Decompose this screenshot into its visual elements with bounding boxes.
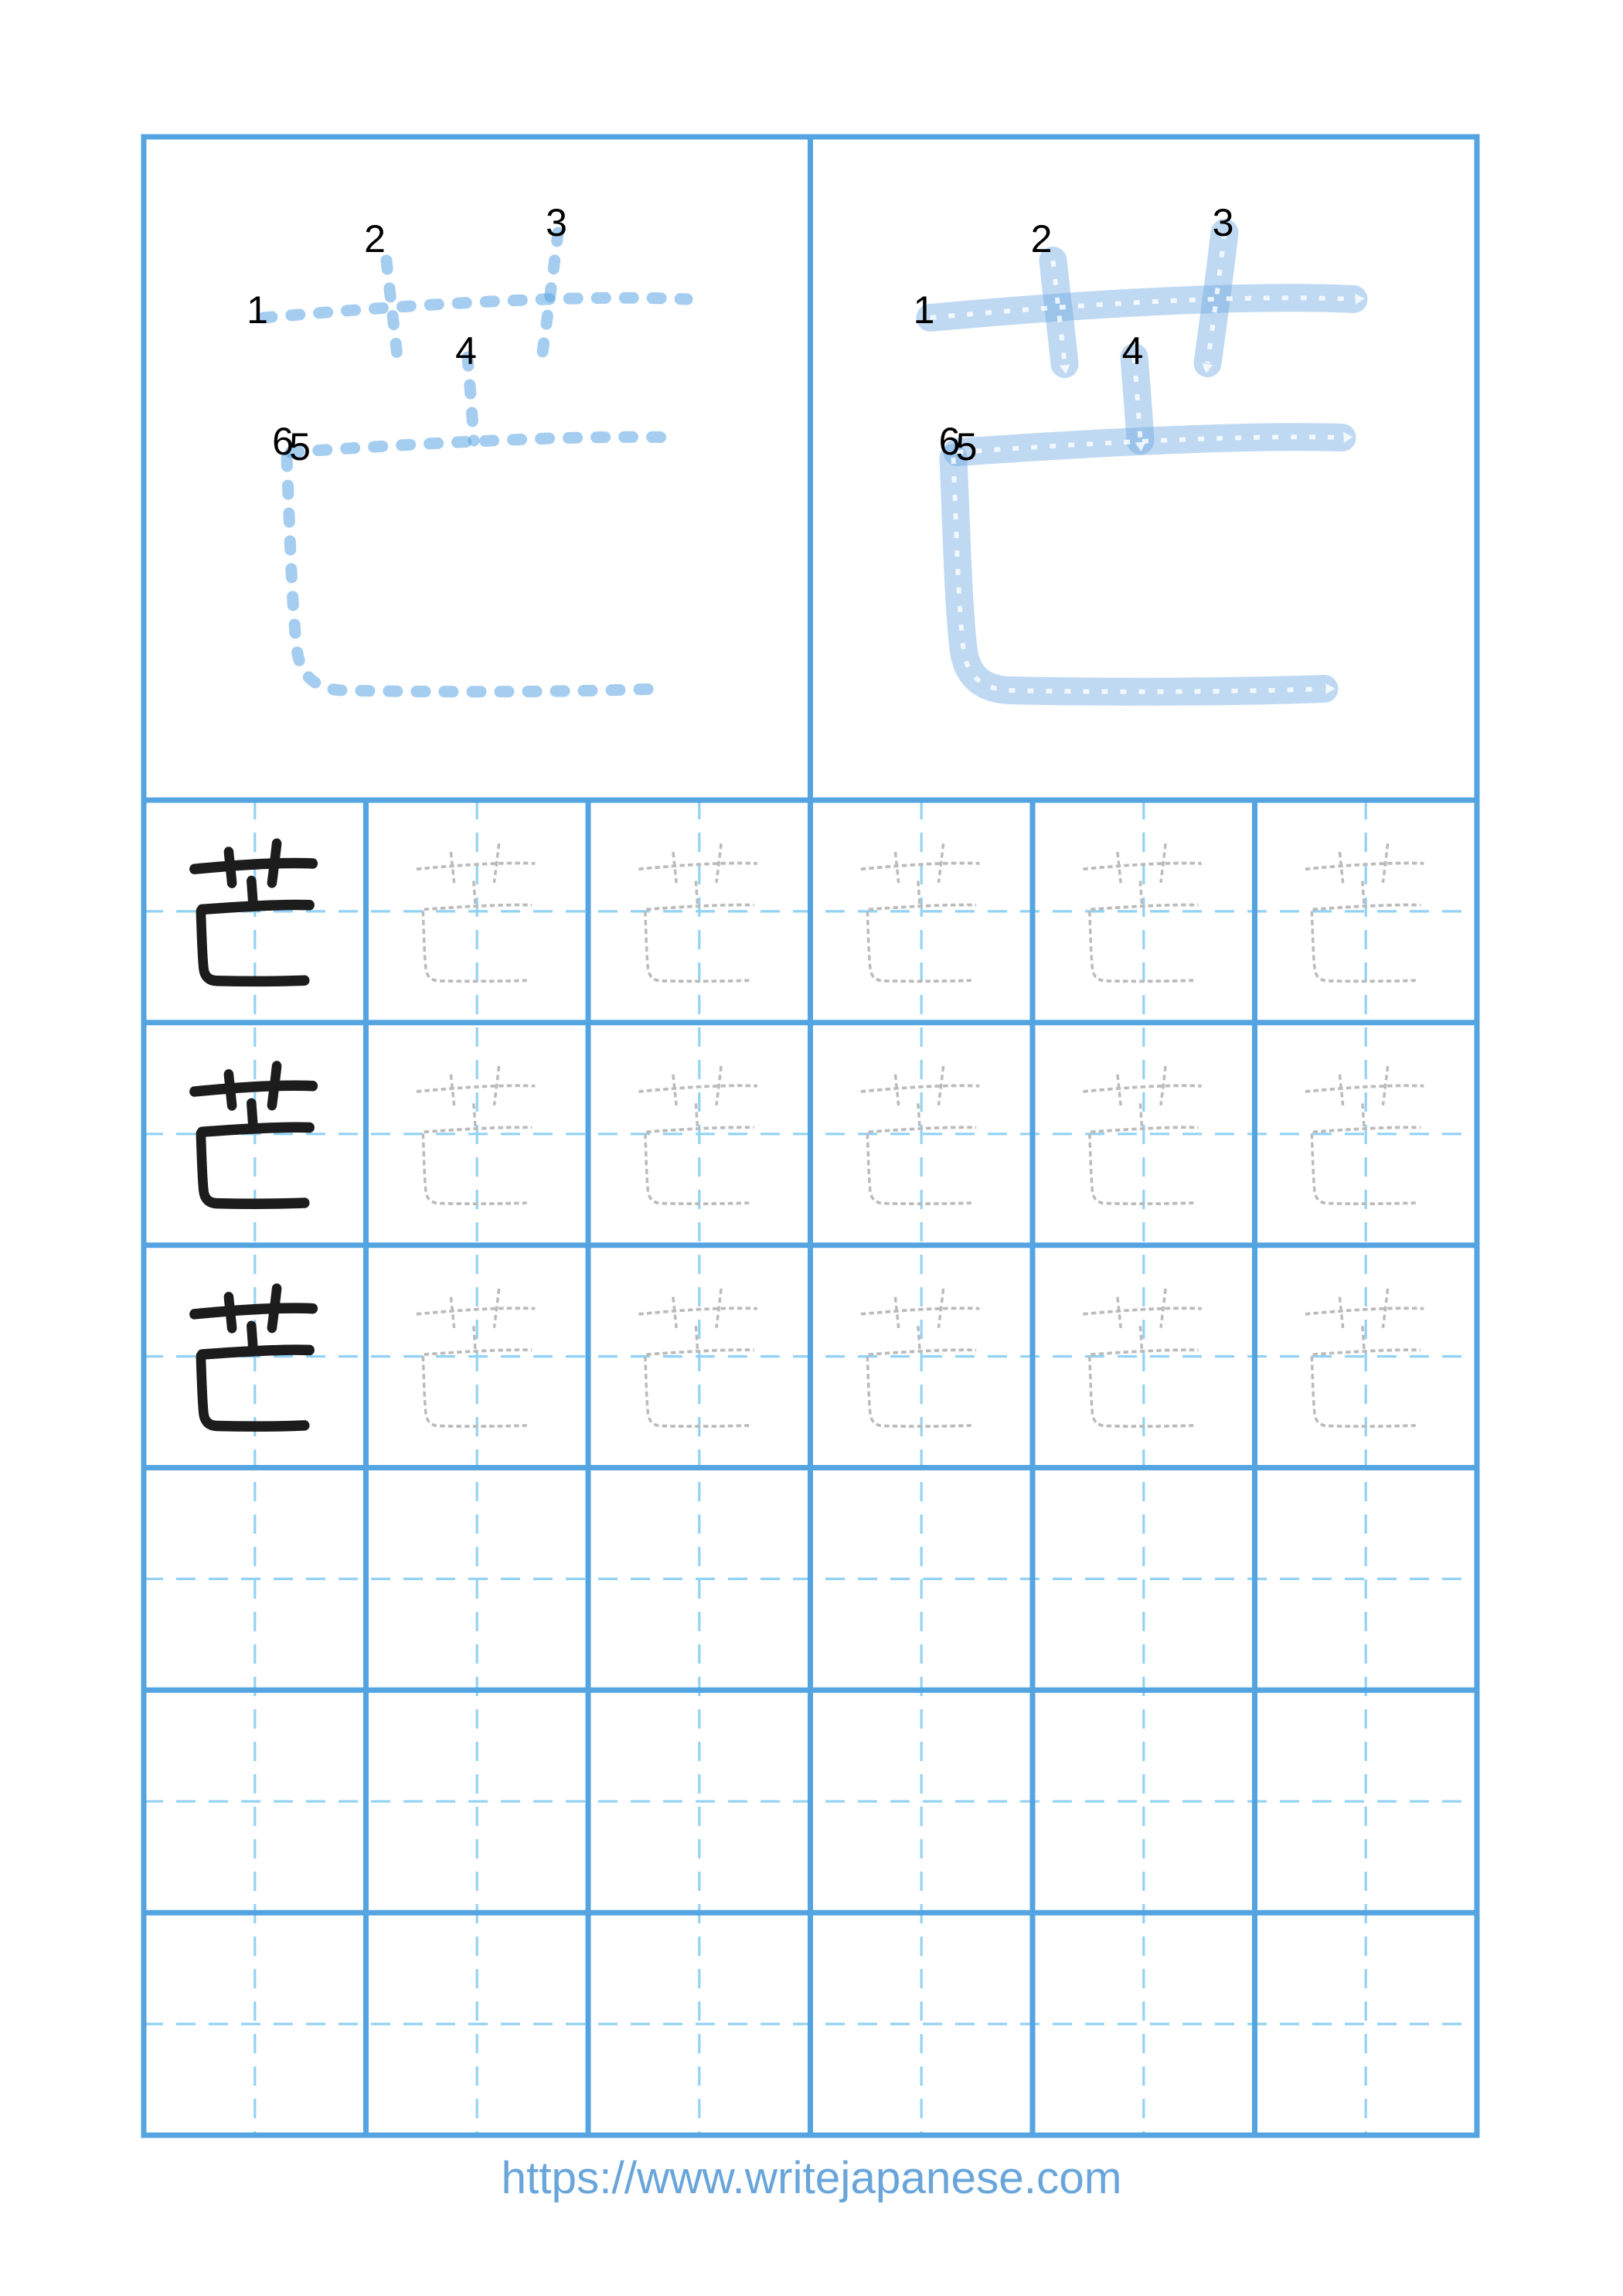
svg-text:2: 2 xyxy=(364,217,386,261)
svg-text:5: 5 xyxy=(289,425,311,468)
svg-text:1: 1 xyxy=(247,288,268,332)
svg-text:4: 4 xyxy=(455,329,477,373)
svg-text:https://www.writejapanese.com: https://www.writejapanese.com xyxy=(501,2153,1121,2203)
svg-text:3: 3 xyxy=(1213,201,1234,244)
svg-text:3: 3 xyxy=(546,201,567,244)
svg-text:1: 1 xyxy=(914,288,935,332)
svg-text:2: 2 xyxy=(1031,217,1053,261)
svg-text:5: 5 xyxy=(956,425,978,468)
svg-text:4: 4 xyxy=(1122,329,1144,373)
